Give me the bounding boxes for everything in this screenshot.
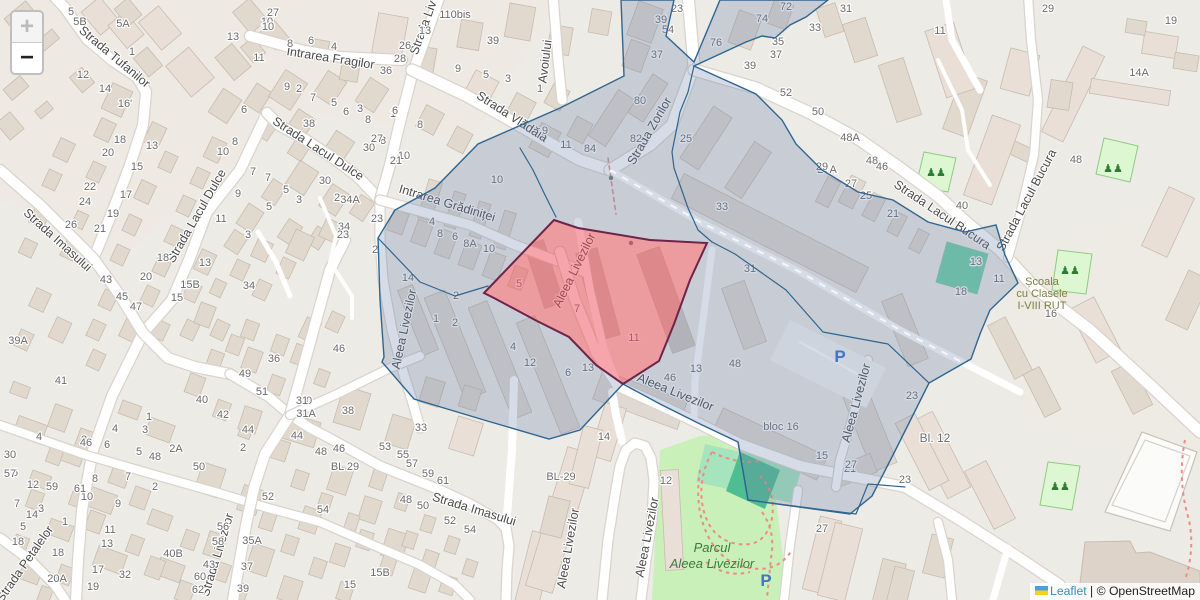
svg-text:110bis: 110bis — [439, 9, 471, 21]
svg-text:21: 21 — [390, 155, 402, 167]
svg-text:46: 46 — [80, 437, 92, 449]
svg-text:36: 36 — [268, 353, 280, 365]
svg-text:19: 19 — [1165, 15, 1177, 27]
svg-text:7: 7 — [14, 498, 20, 510]
svg-text:17: 17 — [92, 564, 104, 576]
svg-text:48: 48 — [400, 494, 412, 506]
svg-text:15: 15 — [171, 292, 183, 304]
svg-text:48: 48 — [149, 451, 161, 463]
svg-text:13: 13 — [419, 25, 431, 37]
svg-text:8: 8 — [365, 114, 371, 126]
svg-text:P: P — [834, 347, 845, 366]
svg-text:11: 11 — [104, 524, 115, 536]
svg-text:57: 57 — [406, 458, 418, 470]
svg-text:10: 10 — [217, 146, 229, 158]
svg-text:7: 7 — [125, 471, 131, 483]
svg-text:53: 53 — [379, 441, 391, 453]
svg-text:1: 1 — [537, 83, 543, 95]
svg-text:18: 18 — [52, 547, 64, 559]
svg-text:BL 29: BL 29 — [331, 461, 359, 473]
svg-text:4: 4 — [331, 41, 337, 53]
svg-text:5: 5 — [136, 446, 142, 458]
svg-text:11: 11 — [934, 25, 945, 37]
svg-text:5B: 5B — [73, 16, 86, 28]
svg-text:37: 37 — [241, 561, 253, 573]
svg-text:58: 58 — [212, 536, 224, 548]
svg-text:23: 23 — [337, 229, 349, 241]
svg-text:2: 2 — [240, 442, 246, 454]
svg-text:2: 2 — [334, 192, 340, 204]
svg-text:5: 5 — [331, 97, 337, 109]
svg-text:32: 32 — [119, 569, 131, 581]
svg-text:Bl. 12: Bl. 12 — [920, 431, 951, 445]
svg-text:46: 46 — [876, 161, 888, 173]
svg-text:20: 20 — [102, 147, 114, 159]
svg-text:52: 52 — [262, 491, 274, 503]
svg-text:27: 27 — [371, 133, 383, 145]
svg-text:9: 9 — [115, 498, 121, 510]
svg-text:50: 50 — [812, 106, 824, 118]
svg-text:39: 39 — [487, 35, 499, 47]
svg-text:20: 20 — [140, 271, 152, 283]
svg-text:P: P — [760, 571, 771, 590]
svg-text:9: 9 — [284, 81, 290, 93]
svg-text:8: 8 — [287, 38, 293, 50]
svg-text:3: 3 — [357, 103, 363, 115]
svg-text:5: 5 — [283, 184, 289, 196]
svg-text:3: 3 — [296, 194, 302, 206]
svg-text:31A: 31A — [296, 408, 316, 420]
svg-text:2A: 2A — [169, 443, 183, 455]
svg-text:61: 61 — [74, 483, 86, 495]
svg-text:15B: 15B — [180, 279, 200, 291]
svg-text:26: 26 — [65, 219, 77, 231]
svg-text:8: 8 — [417, 119, 423, 131]
svg-text:13: 13 — [101, 538, 113, 550]
svg-text:34A: 34A — [340, 194, 360, 206]
svg-text:3: 3 — [142, 424, 148, 436]
svg-text:6: 6 — [343, 106, 349, 118]
svg-text:30: 30 — [4, 449, 16, 461]
svg-text:7: 7 — [250, 166, 256, 178]
svg-text:5: 5 — [483, 69, 489, 81]
svg-text:Școala: Școala — [1025, 276, 1060, 288]
svg-text:39: 39 — [237, 583, 249, 595]
svg-text:24: 24 — [79, 196, 91, 208]
svg-text:18: 18 — [114, 134, 126, 146]
svg-text:52: 52 — [780, 87, 792, 99]
svg-text:3: 3 — [505, 73, 511, 85]
svg-text:50: 50 — [193, 461, 205, 473]
svg-text:47: 47 — [130, 301, 142, 313]
svg-text:1: 1 — [62, 516, 68, 528]
svg-text:BL-29: BL-29 — [546, 471, 575, 483]
svg-text:56: 56 — [217, 521, 229, 533]
svg-text:1: 1 — [146, 411, 152, 423]
svg-text:5: 5 — [20, 521, 26, 533]
svg-text:♟♟: ♟♟ — [1103, 163, 1123, 175]
svg-text:4: 4 — [112, 423, 118, 435]
svg-text:52: 52 — [444, 515, 456, 527]
svg-text:46: 46 — [333, 343, 345, 355]
svg-text:40: 40 — [956, 200, 968, 212]
svg-text:37: 37 — [770, 49, 782, 61]
svg-text:7: 7 — [310, 92, 316, 104]
svg-text:49: 49 — [239, 368, 251, 380]
svg-text:27: 27 — [267, 7, 279, 19]
svg-text:14A: 14A — [1129, 67, 1149, 79]
svg-text:13: 13 — [146, 140, 158, 152]
svg-text:5A: 5A — [116, 18, 130, 30]
svg-text:I-VIII RUT: I-VIII RUT — [1018, 300, 1067, 312]
svg-text:30: 30 — [319, 175, 331, 187]
svg-text:7: 7 — [265, 172, 271, 184]
svg-text:14: 14 — [26, 509, 38, 521]
svg-text:16: 16 — [1045, 308, 1057, 320]
svg-text:34: 34 — [243, 280, 255, 292]
svg-text:16': 16' — [118, 98, 132, 110]
svg-text:9: 9 — [235, 188, 241, 200]
svg-text:62: 62 — [192, 584, 204, 596]
svg-text:45: 45 — [116, 291, 128, 303]
svg-text:31: 31 — [840, 3, 852, 15]
svg-text:12: 12 — [77, 69, 89, 81]
svg-text:59: 59 — [46, 481, 58, 493]
svg-text:8: 8 — [232, 136, 238, 148]
svg-text:48: 48 — [315, 446, 327, 458]
svg-text:3: 3 — [38, 503, 44, 515]
svg-text:12: 12 — [27, 479, 39, 491]
svg-text:1: 1 — [129, 46, 135, 58]
svg-text:46: 46 — [333, 443, 345, 455]
svg-text:39A: 39A — [8, 335, 28, 347]
svg-text:42: 42 — [217, 409, 229, 421]
svg-text:Parcul: Parcul — [694, 540, 732, 555]
svg-text:51: 51 — [256, 386, 268, 398]
svg-text:22: 22 — [84, 181, 96, 193]
svg-text:14: 14 — [99, 83, 111, 95]
svg-text:2: 2 — [152, 481, 158, 493]
svg-text:26: 26 — [399, 40, 411, 52]
svg-text:10: 10 — [262, 21, 274, 33]
svg-text:57: 57 — [4, 468, 16, 480]
svg-text:2: 2 — [296, 83, 302, 95]
svg-text:41: 41 — [55, 375, 67, 387]
svg-text:9: 9 — [455, 63, 461, 75]
svg-text:54: 54 — [317, 504, 329, 516]
svg-text:♟♟: ♟♟ — [926, 167, 946, 179]
svg-text:14: 14 — [598, 431, 610, 443]
svg-text:60: 60 — [194, 571, 206, 583]
svg-text:40B: 40B — [163, 548, 183, 560]
svg-text:8: 8 — [92, 473, 98, 485]
svg-text:13: 13 — [199, 257, 211, 269]
svg-text:18: 18 — [12, 536, 24, 548]
svg-text:43: 43 — [100, 274, 112, 286]
svg-text:21: 21 — [94, 223, 106, 235]
svg-text:48: 48 — [1070, 154, 1082, 166]
svg-text:36: 36 — [380, 65, 392, 77]
svg-text:15: 15 — [131, 161, 143, 173]
svg-text:15B: 15B — [370, 567, 390, 579]
svg-text:17: 17 — [120, 189, 132, 201]
svg-text:6: 6 — [308, 35, 314, 47]
svg-text:40: 40 — [196, 394, 208, 406]
svg-text:39: 39 — [744, 60, 756, 72]
svg-text:15: 15 — [344, 579, 356, 591]
svg-text:29: 29 — [1042, 3, 1054, 15]
svg-text:48A: 48A — [840, 132, 860, 144]
svg-text:11: 11 — [253, 52, 264, 64]
svg-text:59: 59 — [422, 468, 434, 480]
svg-text:38: 38 — [303, 118, 315, 130]
svg-text:6: 6 — [241, 104, 247, 116]
svg-text:5: 5 — [266, 201, 272, 213]
svg-text:33: 33 — [415, 422, 427, 434]
svg-text:♟♟: ♟♟ — [1060, 265, 1080, 277]
svg-text:4: 4 — [36, 431, 42, 443]
svg-text:11: 11 — [215, 213, 226, 225]
svg-text:31: 31 — [296, 395, 308, 407]
svg-text:12: 12 — [660, 475, 672, 487]
svg-text:2: 2 — [372, 244, 378, 256]
svg-text:6: 6 — [392, 105, 398, 117]
svg-text:19: 19 — [107, 208, 119, 220]
svg-text:13: 13 — [227, 31, 239, 43]
svg-text:Aleea Livezilor: Aleea Livezilor — [669, 556, 755, 571]
svg-text:43: 43 — [203, 559, 215, 571]
svg-text:20A: 20A — [47, 573, 67, 585]
svg-text:♟♟: ♟♟ — [1050, 481, 1070, 493]
svg-text:38: 38 — [342, 405, 354, 417]
svg-text:44: 44 — [242, 424, 254, 436]
svg-text:44: 44 — [291, 430, 303, 442]
svg-text:23: 23 — [371, 213, 383, 225]
svg-text:6: 6 — [104, 439, 110, 451]
svg-text:50: 50 — [417, 500, 429, 512]
svg-text:27: 27 — [816, 523, 828, 535]
svg-text:61: 61 — [437, 475, 449, 487]
svg-text:18: 18 — [157, 252, 169, 264]
svg-text:35A: 35A — [242, 535, 262, 547]
svg-text:19: 19 — [87, 581, 99, 593]
svg-text:3: 3 — [245, 229, 251, 241]
svg-text:cu Clasele: cu Clasele — [1016, 288, 1067, 300]
svg-text:33: 33 — [809, 22, 821, 34]
svg-text:23: 23 — [899, 474, 911, 486]
svg-text:28: 28 — [394, 53, 406, 65]
svg-text:54: 54 — [464, 524, 476, 536]
